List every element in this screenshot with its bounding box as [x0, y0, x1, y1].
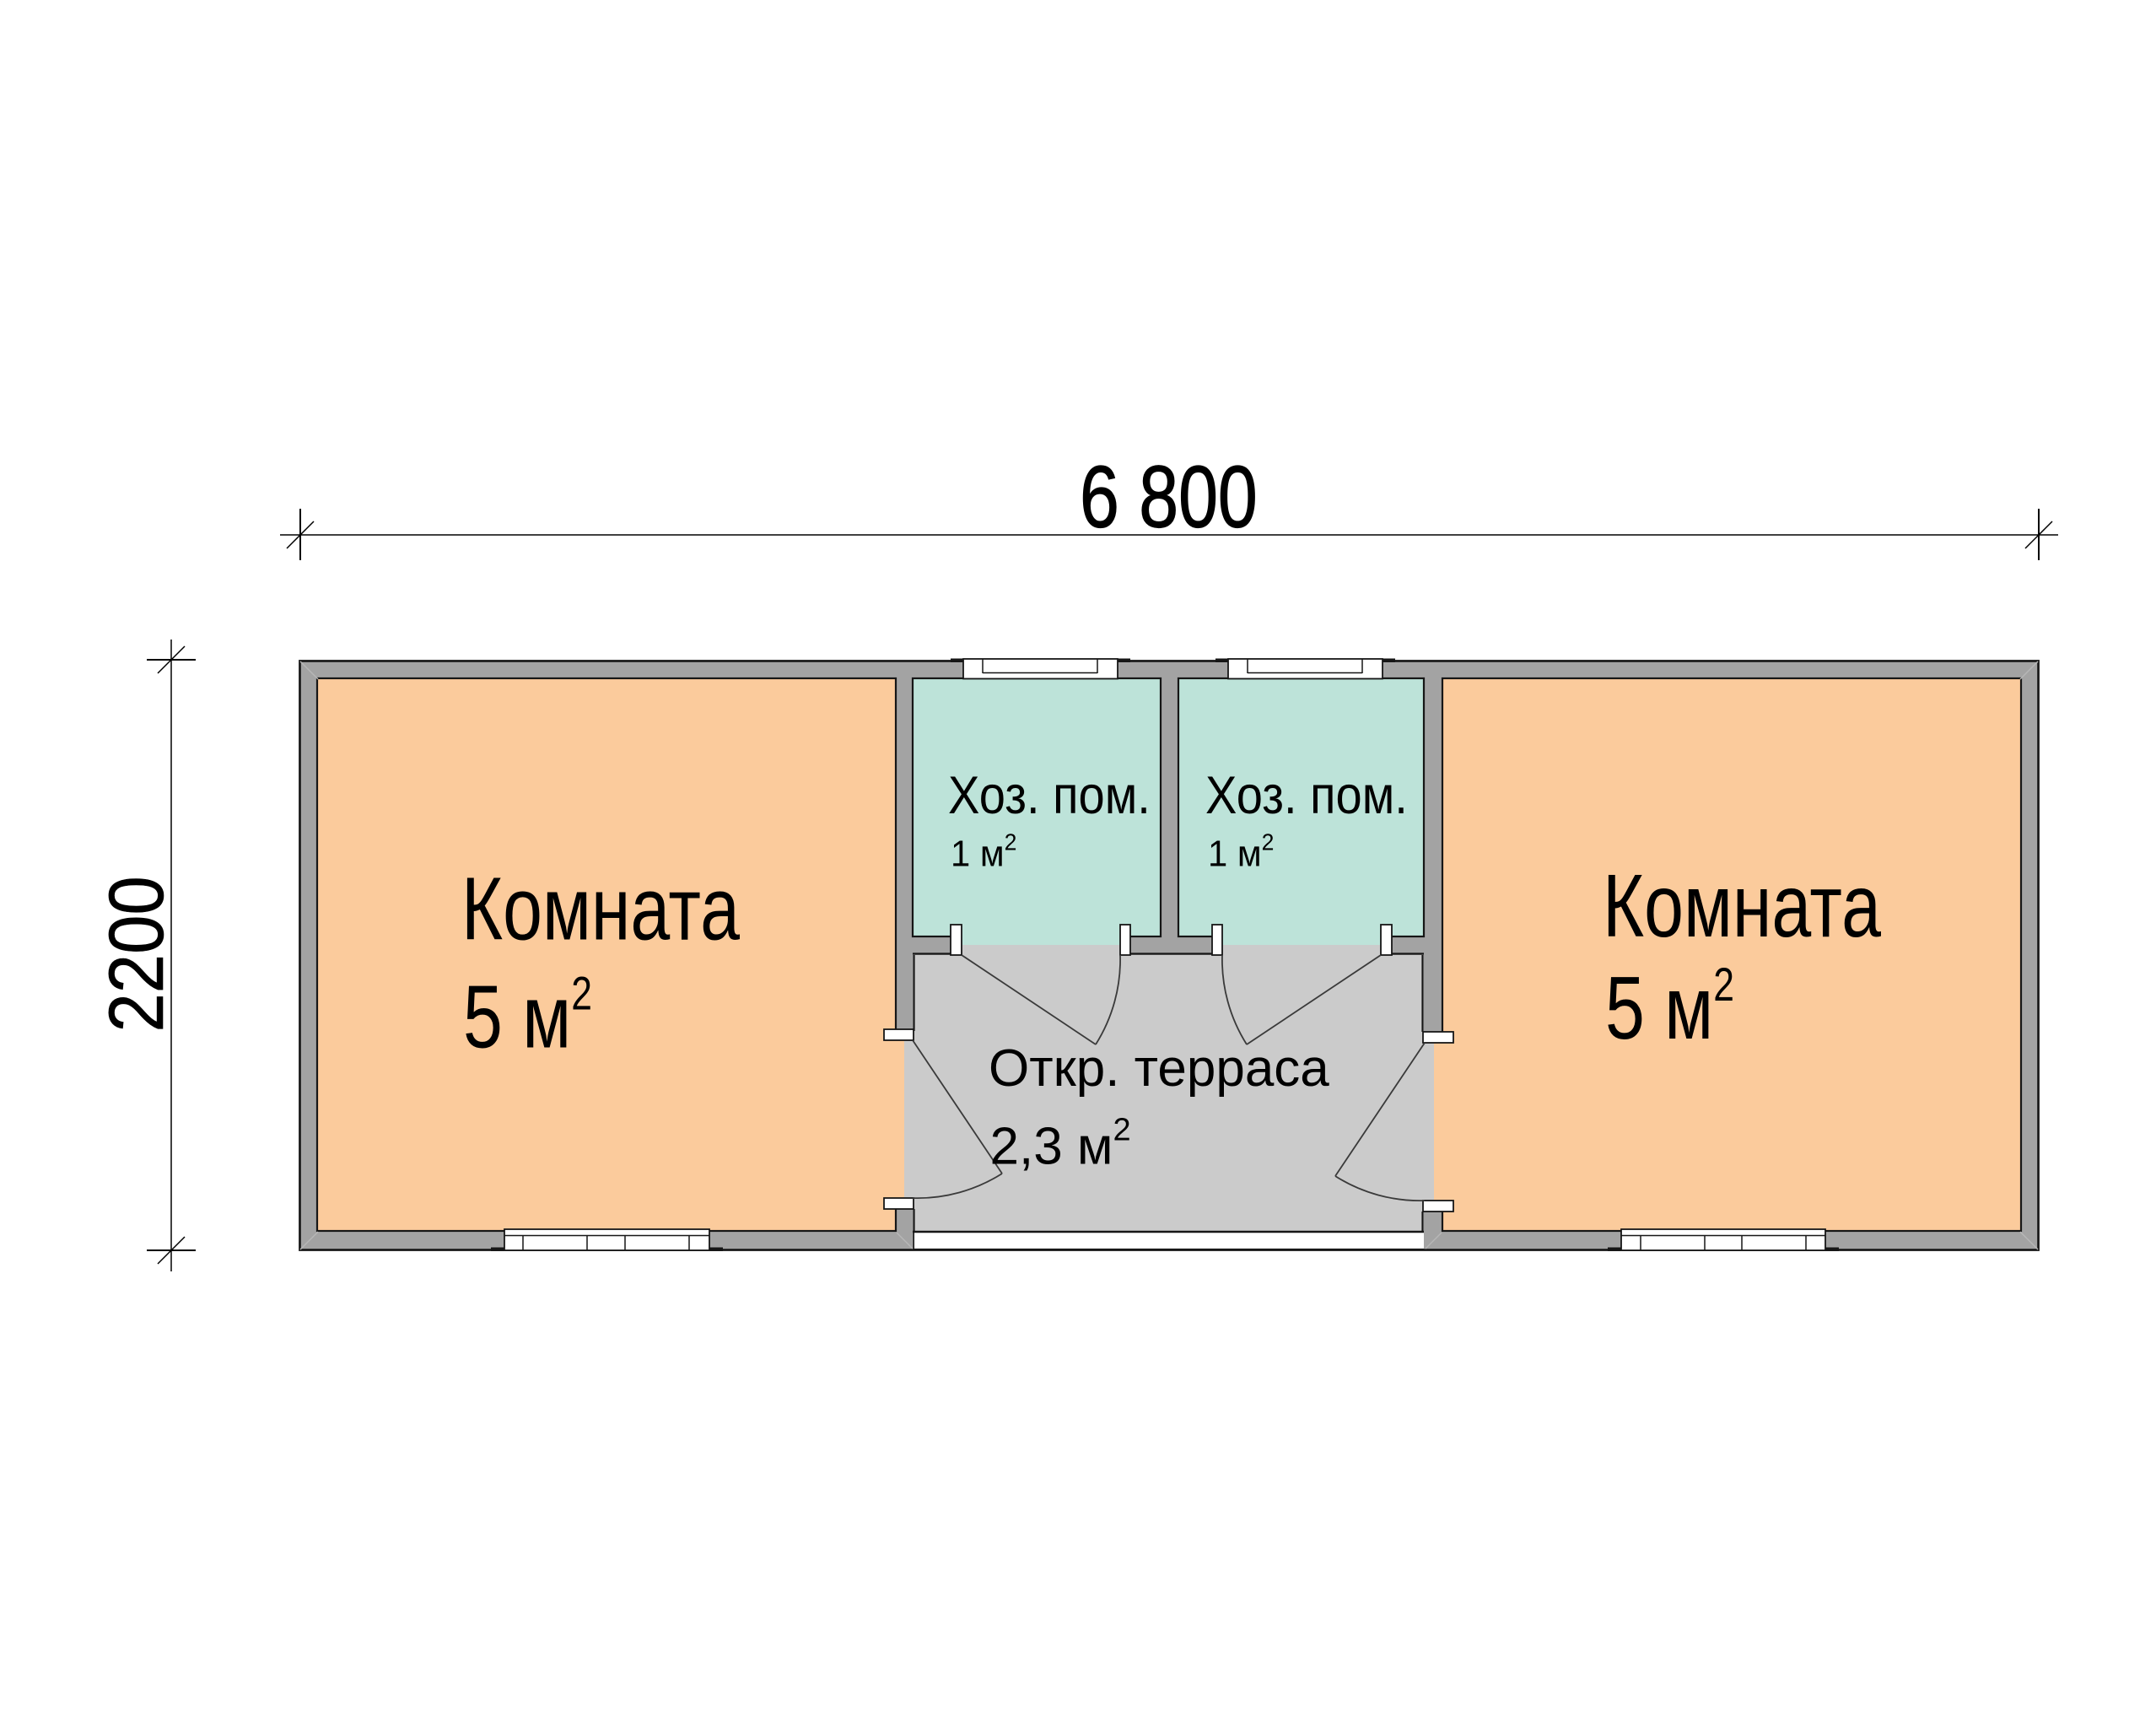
svg-text:Откр. терраса: Откр. терраса	[989, 1039, 1329, 1098]
svg-text:6 800: 6 800	[1080, 448, 1258, 546]
svg-text:Хоз. пом.: Хоз. пом.	[948, 765, 1151, 825]
svg-text:2,3 м2: 2,3 м2	[990, 1113, 1131, 1176]
svg-text:2200: 2200	[93, 876, 180, 1032]
svg-text:Хоз. пом.: Хоз. пом.	[1205, 765, 1408, 825]
svg-text:Комната: Комната	[1603, 856, 1882, 956]
svg-text:Комната: Комната	[461, 859, 741, 958]
